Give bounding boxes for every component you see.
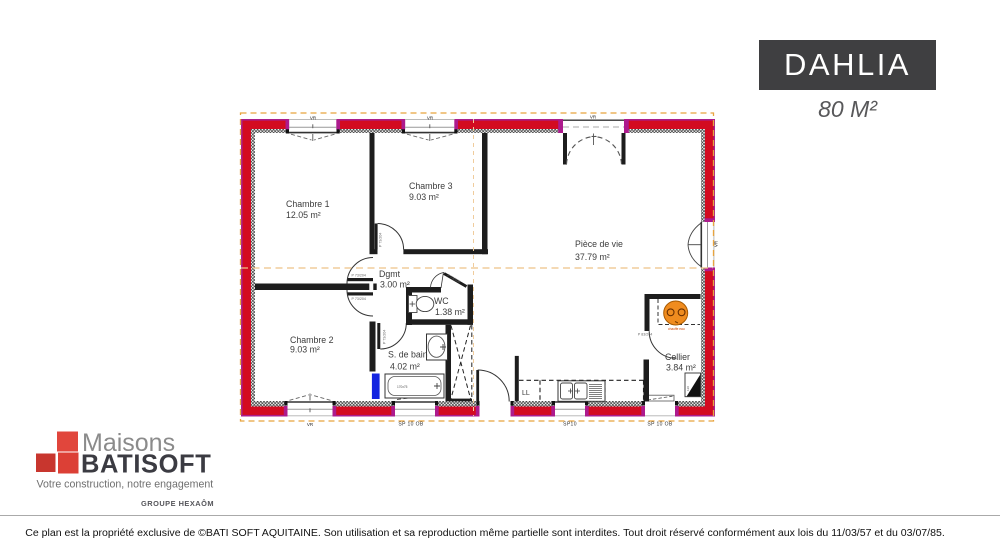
svg-text:VR: VR bbox=[427, 116, 434, 121]
svg-text:SP 10 OB: SP 10 OB bbox=[398, 422, 424, 428]
svg-text:37.79 m²: 37.79 m² bbox=[575, 252, 610, 262]
svg-text:Votre construction, notre enga: Votre construction, notre engagement bbox=[37, 479, 214, 491]
svg-text:4.02 m²: 4.02 m² bbox=[390, 362, 420, 372]
svg-text:9.03 m²: 9.03 m² bbox=[290, 345, 320, 355]
svg-text:S. de bain: S. de bain bbox=[388, 350, 428, 360]
svg-text:P 73/204: P 73/204 bbox=[352, 274, 366, 278]
svg-text:VR: VR bbox=[590, 115, 597, 120]
svg-text:LL: LL bbox=[522, 390, 530, 397]
svg-text:9.03 m²: 9.03 m² bbox=[409, 192, 439, 202]
svg-text:Dgmt: Dgmt bbox=[379, 269, 401, 279]
svg-text:VR: VR bbox=[307, 422, 314, 427]
svg-text:BATISOFT: BATISOFT bbox=[81, 451, 211, 479]
svg-text:1.38 m²: 1.38 m² bbox=[435, 307, 465, 317]
svg-text:WC: WC bbox=[434, 296, 449, 306]
svg-text:VR: VR bbox=[714, 240, 719, 247]
svg-text:SP10: SP10 bbox=[563, 422, 577, 428]
svg-text:Cellier: Cellier bbox=[665, 352, 690, 362]
svg-text:P 83/204: P 83/204 bbox=[638, 333, 652, 337]
svg-text:VR: VR bbox=[310, 116, 317, 121]
svg-text:Chambre 1: Chambre 1 bbox=[286, 199, 330, 209]
svg-text:120: 120 bbox=[686, 386, 690, 391]
svg-text:12.05 m²: 12.05 m² bbox=[286, 210, 321, 220]
svg-text:P 73/204: P 73/204 bbox=[379, 233, 383, 247]
svg-text:Chambre 2: Chambre 2 bbox=[290, 335, 334, 345]
svg-text:Chambre 3: Chambre 3 bbox=[409, 181, 453, 191]
svg-text:3.00 m²: 3.00 m² bbox=[380, 280, 410, 290]
svg-text:P 73/204: P 73/204 bbox=[383, 330, 387, 344]
svg-text:Pièce de vie: Pièce de vie bbox=[575, 239, 623, 249]
svg-text:SP 10 OB: SP 10 OB bbox=[647, 422, 673, 428]
svg-text:3.84 m²: 3.84 m² bbox=[666, 363, 696, 373]
svg-text:170x75: 170x75 bbox=[397, 385, 408, 389]
svg-text:chauffe eau: chauffe eau bbox=[668, 327, 685, 331]
svg-text:P 73/204: P 73/204 bbox=[352, 297, 366, 301]
svg-text:GROUPE HEXAÔM: GROUPE HEXAÔM bbox=[141, 499, 214, 508]
